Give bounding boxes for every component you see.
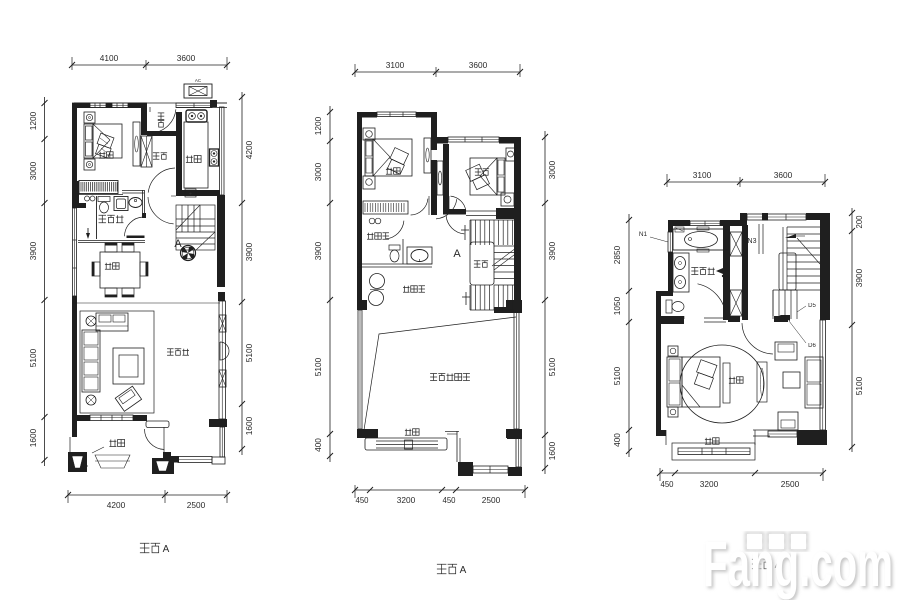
- svg-text:3900: 3900: [244, 242, 254, 261]
- svg-text:3600: 3600: [177, 53, 196, 63]
- svg-text:AC: AC: [195, 78, 202, 83]
- svg-text:4200: 4200: [244, 140, 254, 159]
- svg-text:3900: 3900: [28, 241, 38, 260]
- svg-text:N1: N1: [639, 231, 648, 238]
- svg-text:N3: N3: [748, 238, 757, 245]
- svg-text:3200: 3200: [397, 495, 416, 505]
- svg-text:1600: 1600: [547, 441, 557, 460]
- svg-text:A: A: [460, 565, 467, 576]
- svg-text:1600: 1600: [244, 416, 254, 435]
- svg-text:4100: 4100: [100, 53, 119, 63]
- svg-text:400: 400: [313, 438, 323, 452]
- svg-text:450: 450: [442, 496, 456, 505]
- svg-text:4200: 4200: [107, 500, 126, 510]
- svg-text:A: A: [453, 248, 461, 260]
- svg-text:1600: 1600: [28, 428, 38, 447]
- svg-text:5100: 5100: [244, 343, 254, 362]
- svg-text:D5: D5: [808, 303, 816, 309]
- svg-text:400: 400: [612, 433, 622, 447]
- svg-text:3000: 3000: [313, 162, 323, 181]
- svg-text:2500: 2500: [482, 495, 501, 505]
- svg-text:5100: 5100: [854, 376, 864, 395]
- svg-text:450: 450: [660, 480, 674, 489]
- svg-text:A: A: [174, 238, 182, 250]
- svg-text:D6: D6: [808, 343, 816, 349]
- svg-text:5100: 5100: [612, 366, 622, 385]
- svg-text:3600: 3600: [469, 60, 488, 70]
- svg-text:3200: 3200: [700, 479, 719, 489]
- svg-text:200: 200: [855, 215, 864, 229]
- svg-text:1200: 1200: [28, 111, 38, 130]
- svg-text:1050: 1050: [612, 296, 622, 315]
- svg-text:5100: 5100: [547, 357, 557, 376]
- svg-text:+: +: [189, 192, 192, 198]
- svg-text:3900: 3900: [547, 241, 557, 260]
- svg-text:5100: 5100: [313, 357, 323, 376]
- svg-text:3000: 3000: [547, 160, 557, 179]
- svg-text:3000: 3000: [28, 161, 38, 180]
- svg-text:Fang.com: Fang.com: [703, 528, 893, 600]
- svg-text:A: A: [163, 544, 170, 555]
- svg-text:3900: 3900: [854, 268, 864, 287]
- svg-text:5100: 5100: [28, 348, 38, 367]
- svg-text:3100: 3100: [386, 60, 405, 70]
- svg-text:450: 450: [355, 496, 369, 505]
- svg-text:2500: 2500: [781, 479, 800, 489]
- svg-text:3100: 3100: [693, 170, 712, 180]
- svg-text:3900: 3900: [313, 241, 323, 260]
- svg-text:3600: 3600: [774, 170, 793, 180]
- svg-text:2850: 2850: [612, 245, 622, 264]
- svg-text:1200: 1200: [313, 116, 323, 135]
- svg-text:2500: 2500: [187, 500, 206, 510]
